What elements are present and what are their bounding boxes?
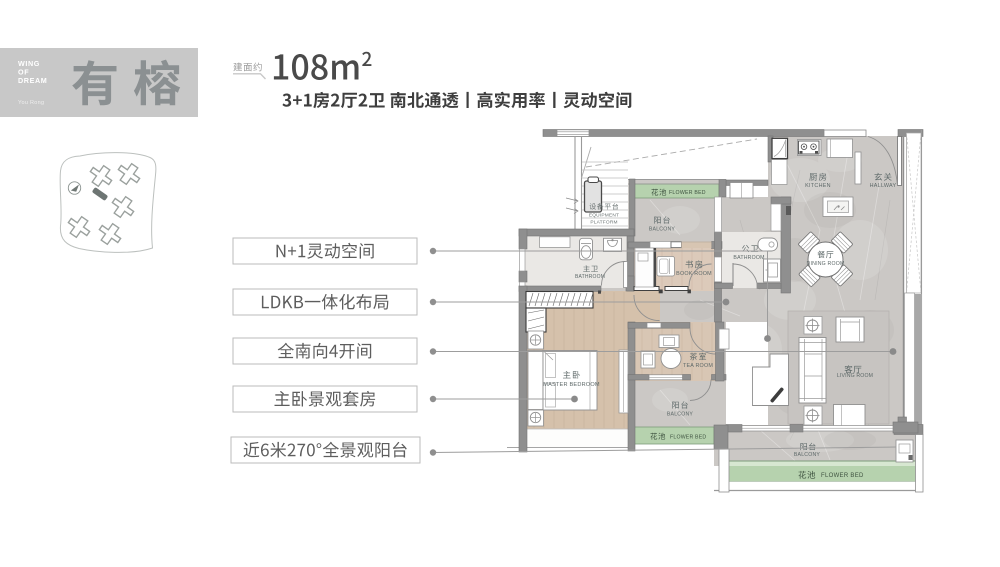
svg-text:DREAM: DREAM	[18, 76, 47, 85]
svg-text:BATHROOM: BATHROOM	[733, 255, 764, 261]
svg-text:LIVING ROOM: LIVING ROOM	[837, 373, 873, 379]
svg-text:FLOWER BED: FLOWER BED	[670, 434, 706, 440]
svg-text:BALCONY: BALCONY	[667, 412, 694, 418]
svg-text:MASTER BEDROOM: MASTER BEDROOM	[543, 382, 600, 388]
svg-text:HALLWAY: HALLWAY	[870, 183, 897, 189]
svg-text:KITCHEN: KITCHEN	[805, 183, 831, 189]
svg-text:BALCONY: BALCONY	[649, 227, 676, 233]
svg-text:BALCONY: BALCONY	[794, 452, 821, 458]
svg-text:FLOWER BED: FLOWER BED	[669, 190, 706, 196]
svg-text:TEA ROOM: TEA ROOM	[683, 363, 713, 369]
svg-text:FLOWER BED: FLOWER BED	[821, 473, 864, 479]
svg-text:DINING ROOM: DINING ROOM	[807, 261, 845, 267]
svg-text:EQUIPMENT: EQUIPMENT	[589, 213, 619, 219]
svg-text:BOOK ROOM: BOOK ROOM	[676, 271, 712, 277]
svg-text:BATHROOM: BATHROOM	[575, 274, 605, 280]
svg-text:PLATFORM: PLATFORM	[590, 220, 617, 226]
svg-text:You Rong: You Rong	[18, 100, 44, 106]
